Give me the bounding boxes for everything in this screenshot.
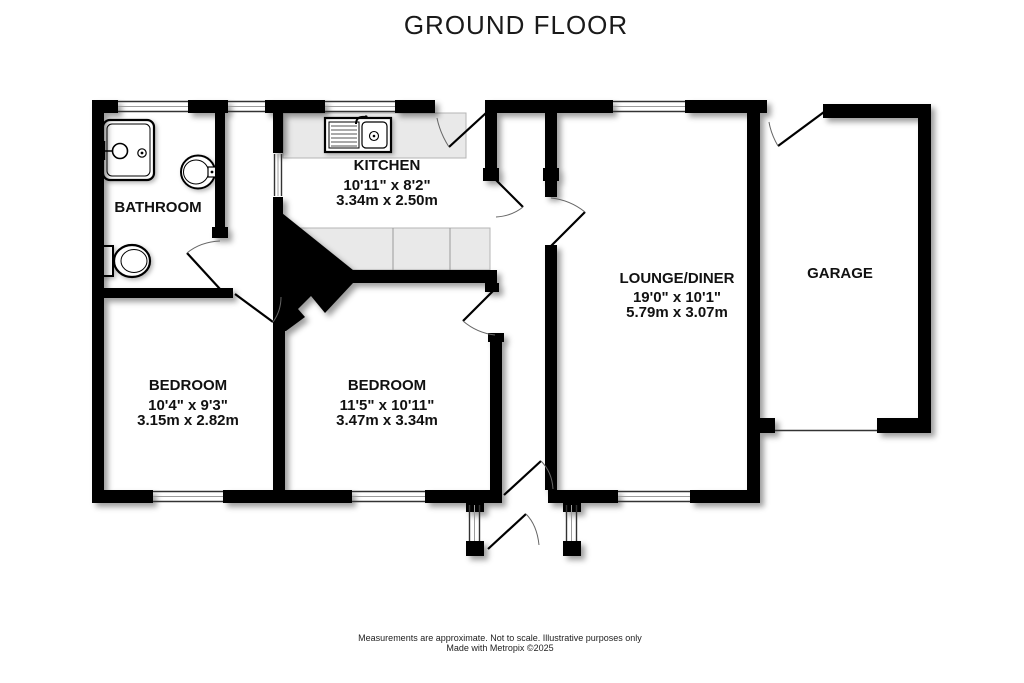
wall-segment	[548, 490, 618, 503]
garage-label: GARAGE	[807, 265, 873, 282]
garage-wall	[823, 104, 931, 118]
kitchen-sink-icon	[325, 115, 391, 152]
window-bathroom	[118, 102, 188, 112]
garage-side-door	[769, 112, 824, 146]
svg-text:BEDROOM: BEDROOM	[149, 377, 227, 394]
bedroom-divider-wall	[273, 330, 285, 490]
svg-text:3.47m x 3.34m: 3.47m x 3.34m	[336, 412, 438, 429]
svg-text:3.15m x 2.82m: 3.15m x 2.82m	[137, 412, 239, 429]
window-lounge-bottom	[618, 492, 690, 502]
shower-tray-icon	[103, 120, 154, 180]
wall-segment	[395, 100, 435, 113]
bathroom-wall	[104, 288, 233, 298]
garage-wall	[918, 104, 931, 433]
svg-text:KITCHEN: KITCHEN	[354, 157, 421, 174]
kitchen-wall	[485, 113, 497, 170]
kitchen-label: KITCHEN 10'11" x 8'2" 3.34m x 2.50m	[336, 157, 438, 209]
disclaimer-line2: Made with Metropix ©2025	[446, 643, 553, 653]
front-door	[488, 514, 539, 549]
bedroom2-label: BEDROOM 11'5" x 10'11" 3.47m x 3.34m	[336, 377, 438, 429]
lounge-wall	[545, 113, 557, 197]
bedroom2-door	[463, 288, 496, 335]
washbasin-icon	[181, 156, 216, 189]
porch-wall	[563, 541, 581, 556]
wall-segment	[747, 113, 760, 503]
bathroom-label: BATHROOM	[114, 199, 201, 216]
door-stop	[483, 168, 499, 181]
kitchen-wall	[353, 270, 497, 283]
lounge-door	[551, 198, 585, 246]
window-lounge-top	[613, 102, 685, 112]
svg-text:3.34m x 2.50m: 3.34m x 2.50m	[336, 192, 438, 209]
wall-segment	[188, 100, 228, 113]
window-cupboard	[228, 102, 265, 112]
svg-text:BEDROOM: BEDROOM	[348, 377, 426, 394]
page-title: GROUND FLOOR	[404, 10, 628, 40]
wall-segment	[685, 100, 767, 113]
lounge-label: LOUNGE/DINER 19'0" x 10'1" 5.79m x 3.07m	[619, 270, 734, 321]
door-stop	[212, 227, 228, 238]
disclaimer-line1: Measurements are approximate. Not to sca…	[358, 633, 642, 643]
bedroom-wall	[490, 333, 502, 490]
svg-text:5.79m x 3.07m: 5.79m x 3.07m	[626, 304, 728, 321]
door-stop	[543, 168, 559, 181]
kitchen-wall	[273, 113, 283, 153]
bedroom1-label: BEDROOM 10'4" x 9'3" 3.15m x 2.82m	[137, 377, 239, 429]
disclaimer: Measurements are approximate. Not to sca…	[358, 633, 642, 653]
wall-segment	[425, 490, 502, 503]
toilet-icon	[103, 245, 150, 277]
internal-panel	[275, 154, 282, 196]
bathroom-door	[187, 241, 220, 289]
floorplan-canvas: GROUND FLOOR BATHROOM KITCHEN 10'11" x 8…	[0, 0, 1024, 683]
kitchen-hall-door	[496, 180, 523, 217]
floorplan-page: GROUND FLOOR BATHROOM KITCHEN 10'11" x 8…	[0, 0, 1024, 683]
garage-wall	[877, 418, 931, 433]
garage-wall	[747, 418, 775, 433]
bathroom-wall	[215, 113, 225, 237]
window-bedroom2	[352, 492, 425, 502]
window-bedroom1	[153, 492, 223, 502]
wall-segment	[92, 490, 153, 503]
window-kitchen	[325, 102, 395, 112]
porch-side-walls	[470, 505, 577, 541]
wall-segment	[223, 490, 352, 503]
wall-segment	[265, 100, 325, 113]
wall-segment	[485, 100, 613, 113]
lounge-wall	[545, 245, 557, 490]
porch-wall	[466, 541, 484, 556]
svg-text:LOUNGE/DINER: LOUNGE/DINER	[619, 270, 734, 287]
wall-segment	[92, 100, 104, 503]
